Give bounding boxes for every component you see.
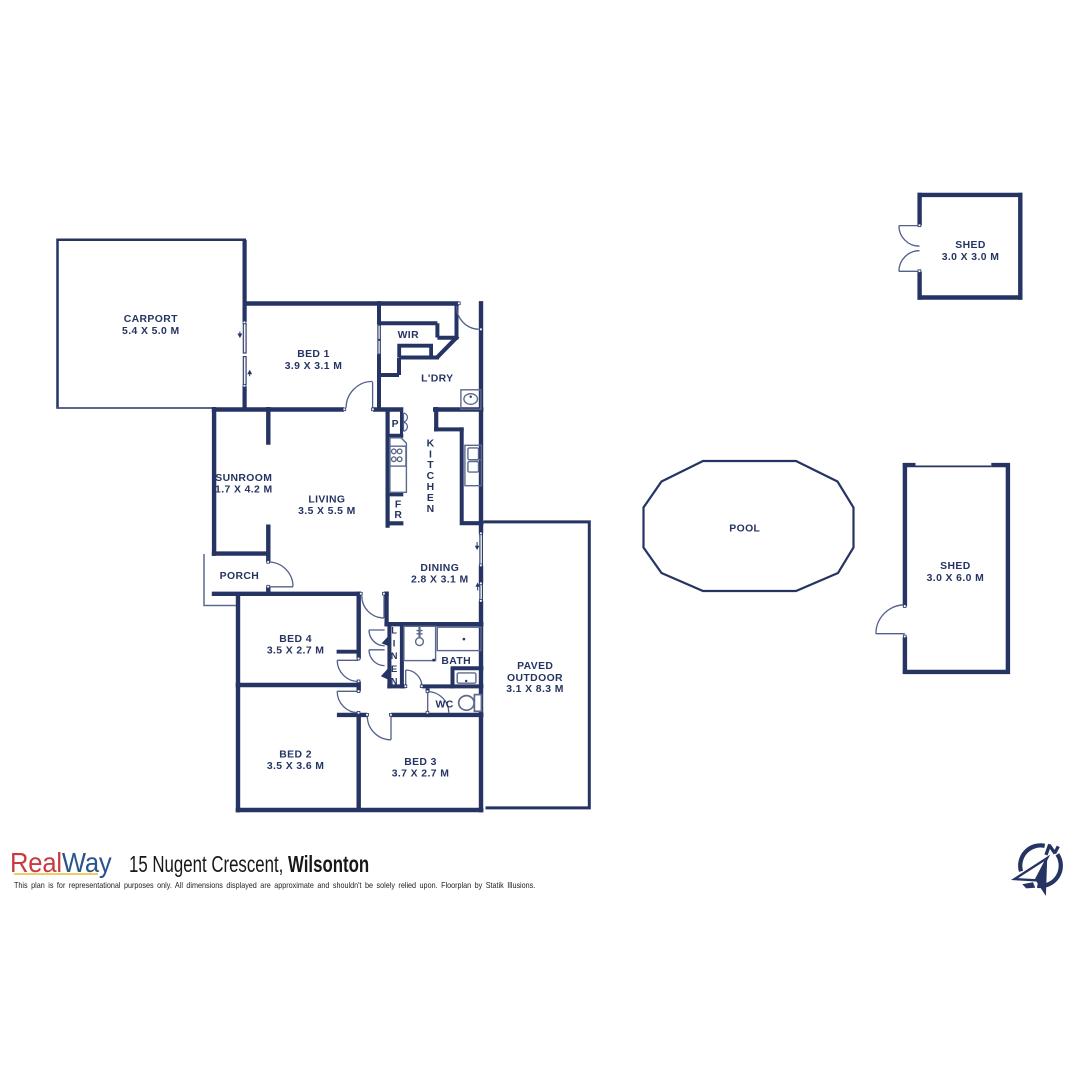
svg-text:PORCH: PORCH xyxy=(220,571,260,582)
svg-text:N: N xyxy=(391,677,398,687)
svg-text:BED 4: BED 4 xyxy=(279,634,312,645)
svg-text:F: F xyxy=(395,499,402,510)
svg-text:3.5 X 5.5 M: 3.5 X 5.5 M xyxy=(298,506,356,517)
svg-text:E: E xyxy=(427,493,434,504)
svg-text:E: E xyxy=(391,664,398,674)
svg-text:3.5 X 3.6 M: 3.5 X 3.6 M xyxy=(267,761,325,772)
svg-text:PAVED: PAVED xyxy=(517,661,553,672)
svg-text:CARPORT: CARPORT xyxy=(124,314,178,325)
svg-text:3.0 X 6.0 M: 3.0 X 6.0 M xyxy=(927,573,985,584)
svg-text:BATH: BATH xyxy=(441,656,471,667)
svg-text:3.1 X 8.3 M: 3.1 X 8.3 M xyxy=(506,684,564,695)
svg-text:DINING: DINING xyxy=(420,563,459,574)
svg-text:N: N xyxy=(391,651,398,661)
svg-text:R: R xyxy=(394,510,402,521)
svg-text:H: H xyxy=(427,482,435,493)
svg-text:2.8 X 3.1 M: 2.8 X 3.1 M xyxy=(411,575,469,586)
svg-text:SUNROOM: SUNROOM xyxy=(215,473,272,484)
svg-text:5.4 X 5.0 M: 5.4 X 5.0 M xyxy=(122,326,180,337)
svg-text:L'DRY: L'DRY xyxy=(421,373,453,384)
svg-text:T: T xyxy=(427,460,434,471)
svg-text:C: C xyxy=(427,471,435,482)
svg-text:BED 1: BED 1 xyxy=(297,349,330,360)
svg-text:BED 2: BED 2 xyxy=(279,749,312,760)
svg-text:N: N xyxy=(427,504,435,515)
svg-text:LIVING: LIVING xyxy=(308,495,345,506)
svg-text:L: L xyxy=(391,626,397,636)
svg-text:WIR: WIR xyxy=(398,330,419,341)
svg-text:POOL: POOL xyxy=(729,523,760,534)
svg-text:3.5 X 2.7 M: 3.5 X 2.7 M xyxy=(267,646,325,657)
svg-text:3.0 X 3.0 M: 3.0 X 3.0 M xyxy=(942,252,1000,263)
svg-text:I: I xyxy=(429,449,432,460)
svg-text:K: K xyxy=(427,438,435,449)
svg-text:3.9 X 3.1 M: 3.9 X 3.1 M xyxy=(285,361,343,372)
svg-text:3.7 X 2.7 M: 3.7 X 2.7 M xyxy=(392,769,450,780)
svg-text:OUTDOOR: OUTDOOR xyxy=(507,673,563,684)
svg-text:I: I xyxy=(393,638,396,648)
svg-text:SHED: SHED xyxy=(955,240,986,251)
svg-text:BED 3: BED 3 xyxy=(404,757,437,768)
svg-text:WC: WC xyxy=(436,700,454,711)
svg-text:SHED: SHED xyxy=(940,561,971,572)
svg-text:1.7 X 4.2 M: 1.7 X 4.2 M xyxy=(215,485,273,496)
svg-text:P: P xyxy=(392,419,399,430)
